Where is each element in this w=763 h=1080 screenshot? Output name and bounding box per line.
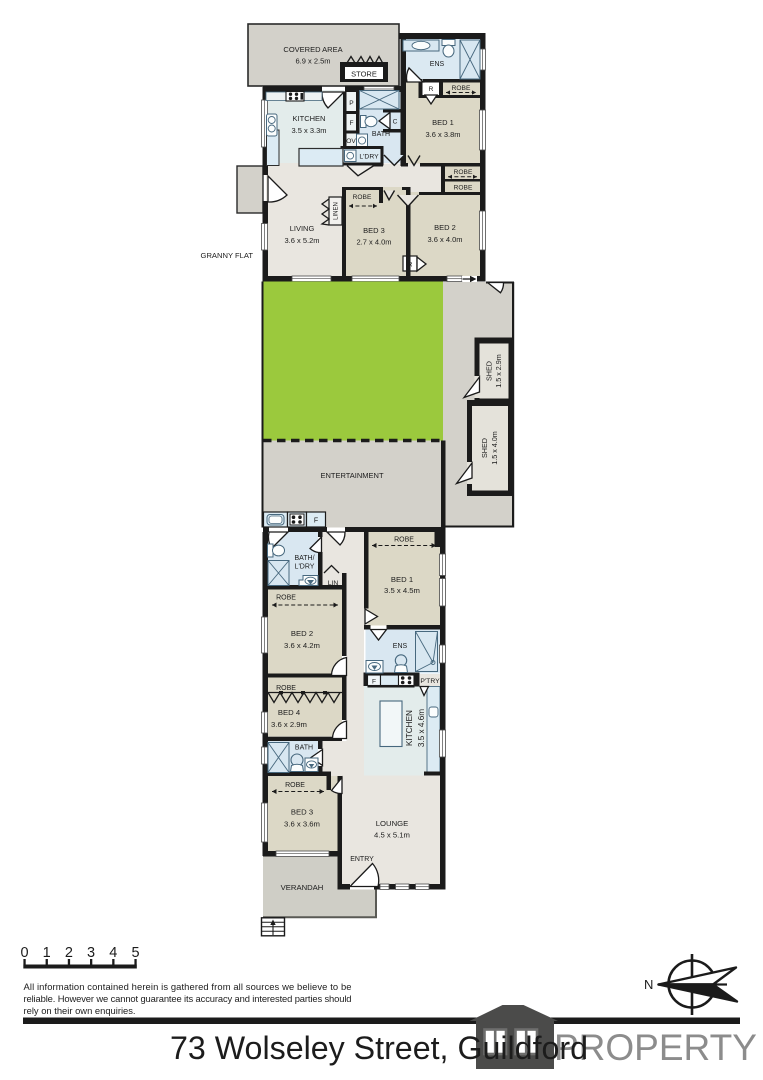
svg-text:L'DRY: L'DRY: [359, 154, 379, 161]
svg-text:6.9 x 2.5m: 6.9 x 2.5m: [295, 57, 330, 66]
svg-text:ROBE: ROBE: [454, 185, 473, 192]
svg-text:3: 3: [87, 945, 95, 961]
svg-text:3.6 x 3.6m: 3.6 x 3.6m: [284, 820, 320, 829]
svg-text:3.6 x 4.2m: 3.6 x 4.2m: [284, 641, 320, 650]
svg-text:BED 4: BED 4: [278, 708, 301, 717]
svg-text:BED 1: BED 1: [391, 575, 413, 584]
svg-text:ROBE: ROBE: [452, 85, 471, 92]
svg-text:3.6 x 5.2m: 3.6 x 5.2m: [284, 236, 319, 245]
svg-text:KITCHEN: KITCHEN: [293, 114, 326, 123]
svg-text:F: F: [314, 518, 318, 525]
svg-text:73 Wolseley Street, Guildford: 73 Wolseley Street, Guildford: [170, 1030, 588, 1066]
svg-text:N: N: [644, 977, 653, 992]
svg-text:All information contained here: All information contained herein is gath…: [24, 981, 352, 992]
svg-text:0: 0: [20, 945, 28, 961]
svg-text:BATH/: BATH/: [294, 555, 314, 562]
svg-text:2.7 x 4.0m: 2.7 x 4.0m: [356, 238, 391, 247]
svg-text:1.5 x 4.0m: 1.5 x 4.0m: [490, 431, 499, 465]
svg-text:P: P: [349, 100, 354, 107]
svg-text:ROBE: ROBE: [454, 169, 473, 176]
svg-text:ROBE: ROBE: [353, 194, 372, 201]
svg-text:ENS: ENS: [393, 643, 408, 650]
svg-text:4: 4: [109, 945, 117, 961]
svg-text:4.5 x 5.1m: 4.5 x 5.1m: [374, 831, 410, 840]
svg-text:2: 2: [65, 945, 73, 961]
svg-text:3.6 x 4.0m: 3.6 x 4.0m: [427, 235, 462, 244]
svg-text:COVERED AREA: COVERED AREA: [283, 45, 342, 54]
svg-text:F: F: [349, 120, 353, 127]
svg-text:P'TRY: P'TRY: [420, 678, 440, 685]
svg-text:SHED: SHED: [480, 438, 489, 458]
svg-text:ENTERTAINMENT: ENTERTAINMENT: [320, 471, 383, 480]
svg-text:VERANDAH: VERANDAH: [281, 883, 324, 892]
svg-text:BED 3: BED 3: [363, 226, 385, 235]
svg-text:L'DRY: L'DRY: [295, 564, 315, 571]
svg-text:GRANNY FLAT: GRANNY FLAT: [201, 251, 254, 260]
svg-text:1: 1: [43, 945, 51, 961]
svg-text:R: R: [429, 86, 434, 93]
svg-text:LIVING: LIVING: [290, 224, 315, 233]
svg-text:BED 3: BED 3: [291, 808, 313, 817]
svg-text:KITCHEN: KITCHEN: [405, 710, 414, 746]
svg-text:3.5 x 4.6m: 3.5 x 4.6m: [417, 709, 426, 747]
svg-text:ROBE: ROBE: [276, 685, 296, 692]
svg-text:BED 2: BED 2: [434, 223, 456, 232]
svg-text:ROBE: ROBE: [285, 782, 305, 789]
svg-text:C: C: [393, 119, 398, 126]
svg-text:OV: OV: [346, 138, 356, 145]
svg-text:ROBE: ROBE: [394, 537, 414, 544]
svg-text:LINEN: LINEN: [334, 202, 340, 220]
svg-text:BED 1: BED 1: [432, 118, 454, 127]
svg-text:ENTRY: ENTRY: [350, 856, 374, 863]
svg-text:1.5 x 2.9m: 1.5 x 2.9m: [494, 354, 503, 388]
svg-text:BED 2: BED 2: [291, 629, 313, 638]
svg-text:BATH: BATH: [295, 745, 313, 752]
svg-text:3.5 x 4.5m: 3.5 x 4.5m: [384, 586, 420, 595]
svg-text:SHED: SHED: [485, 361, 494, 381]
svg-text:ROBE: ROBE: [276, 595, 296, 602]
svg-text:reliable. However we cannot gu: reliable. However we cannot guarantee it…: [24, 993, 352, 1004]
svg-text:rely on their own enquiries.: rely on their own enquiries.: [24, 1005, 136, 1016]
svg-text:3.6 x 3.8m: 3.6 x 3.8m: [425, 130, 460, 139]
svg-text:F: F: [372, 679, 376, 686]
svg-text:ENS: ENS: [430, 61, 445, 68]
svg-text:3.5 x 3.3m: 3.5 x 3.3m: [291, 126, 326, 135]
svg-text:5: 5: [131, 945, 139, 961]
svg-text:LOUNGE: LOUNGE: [376, 819, 408, 828]
svg-text:3.6 x 2.9m: 3.6 x 2.9m: [271, 720, 307, 729]
svg-text:STORE: STORE: [351, 70, 377, 79]
